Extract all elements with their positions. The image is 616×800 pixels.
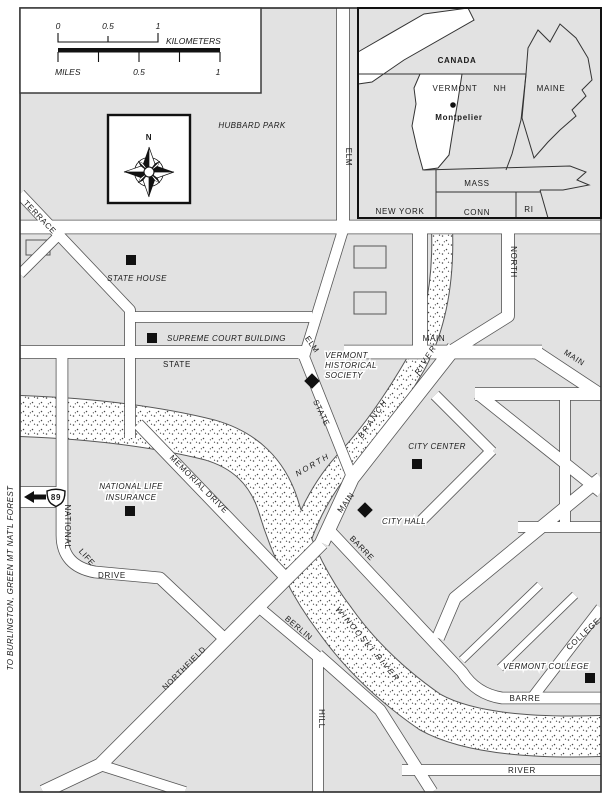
landmark-label-vhs-3: SOCIETY	[325, 371, 363, 380]
scale-km-1: 1	[156, 21, 161, 31]
landmark-label-vhs-1: VERMONT	[325, 351, 369, 360]
montpelier-dot	[450, 102, 456, 108]
scale-miles-bar	[58, 48, 220, 53]
street-label-state-west: STATE	[163, 360, 191, 369]
scale-km-0: 0	[56, 21, 61, 31]
street-label-river: RIVER	[508, 766, 536, 775]
landmark-label-city-center: CITY CENTER	[408, 442, 466, 451]
landmark-label-city-hall: CITY HALL	[382, 517, 426, 526]
scale-km-half: 0.5	[102, 21, 114, 31]
street-label-barre-lower: BARRE	[509, 694, 540, 703]
map-svg: 89 HUBBARD PARK ELM TERRACE STATE HOUSE …	[0, 0, 616, 800]
scale-mi-1: 1	[216, 67, 221, 77]
inset-label-ri: RI	[524, 205, 533, 214]
compass-north-label: N	[146, 133, 152, 142]
small-block	[354, 292, 386, 314]
landmark-label-state-house: STATE HOUSE	[107, 274, 167, 283]
inset-label-maine: MAINE	[537, 84, 566, 93]
scale-miles-unit: MILES	[55, 67, 81, 77]
inset-label-mass: MASS	[464, 179, 489, 188]
street-label-main-upper: MAIN	[423, 334, 446, 343]
inset-label-nh: NH	[494, 84, 507, 93]
landmark-label-nli-2: INSURANCE	[106, 493, 157, 502]
street-label-elm-top: ELM	[344, 148, 353, 167]
inset-label-canada: CANADA	[438, 56, 477, 65]
landmark-label-vermont-college: VERMONT COLLEGE	[503, 662, 589, 671]
montpelier-city-map: 89 HUBBARD PARK ELM TERRACE STATE HOUSE …	[0, 0, 616, 800]
national-life-marker	[125, 506, 135, 516]
small-block	[354, 246, 386, 268]
state-house-marker	[126, 255, 136, 265]
landmark-label-supreme-court: SUPREME COURT BUILDING	[167, 334, 286, 343]
vermont-college-marker	[585, 673, 595, 683]
interstate-route-number: 89	[51, 493, 61, 502]
supreme-court-marker	[147, 333, 157, 343]
inset-label-new-york: NEW YORK	[375, 207, 424, 216]
compass: N	[108, 115, 190, 203]
landmark-label-nli-1: NATIONAL LIFE	[99, 482, 163, 491]
landmark-label-vhs-2: HISTORICAL	[325, 361, 377, 370]
street-label-north: NORTH	[509, 246, 518, 278]
inset-label-montpelier: Montpelier	[435, 113, 482, 122]
inset-label-vermont: VERMONT	[433, 84, 478, 93]
scale-mi-half: 0.5	[133, 67, 145, 77]
street-label-drive: DRIVE	[98, 571, 126, 580]
scale-km-unit: KILOMETERS	[166, 36, 221, 46]
inset-label-conn: CONN	[464, 208, 490, 217]
city-center-marker	[412, 459, 422, 469]
inset-locator-map: CANADA VERMONT NH MAINE Montpelier MASS …	[358, 8, 601, 218]
margin-note-to-burlington: TO BURLINGTON, GREEN MT NAT'L FOREST	[6, 485, 15, 670]
street-label-hill: HILL	[317, 709, 326, 729]
scale-bar: 0 0.5 1 KILOMETERS MILES 0.5 1	[20, 8, 261, 93]
park-label-hubbard: HUBBARD PARK	[218, 121, 286, 130]
street-label-national: NATIONAL	[63, 504, 72, 549]
